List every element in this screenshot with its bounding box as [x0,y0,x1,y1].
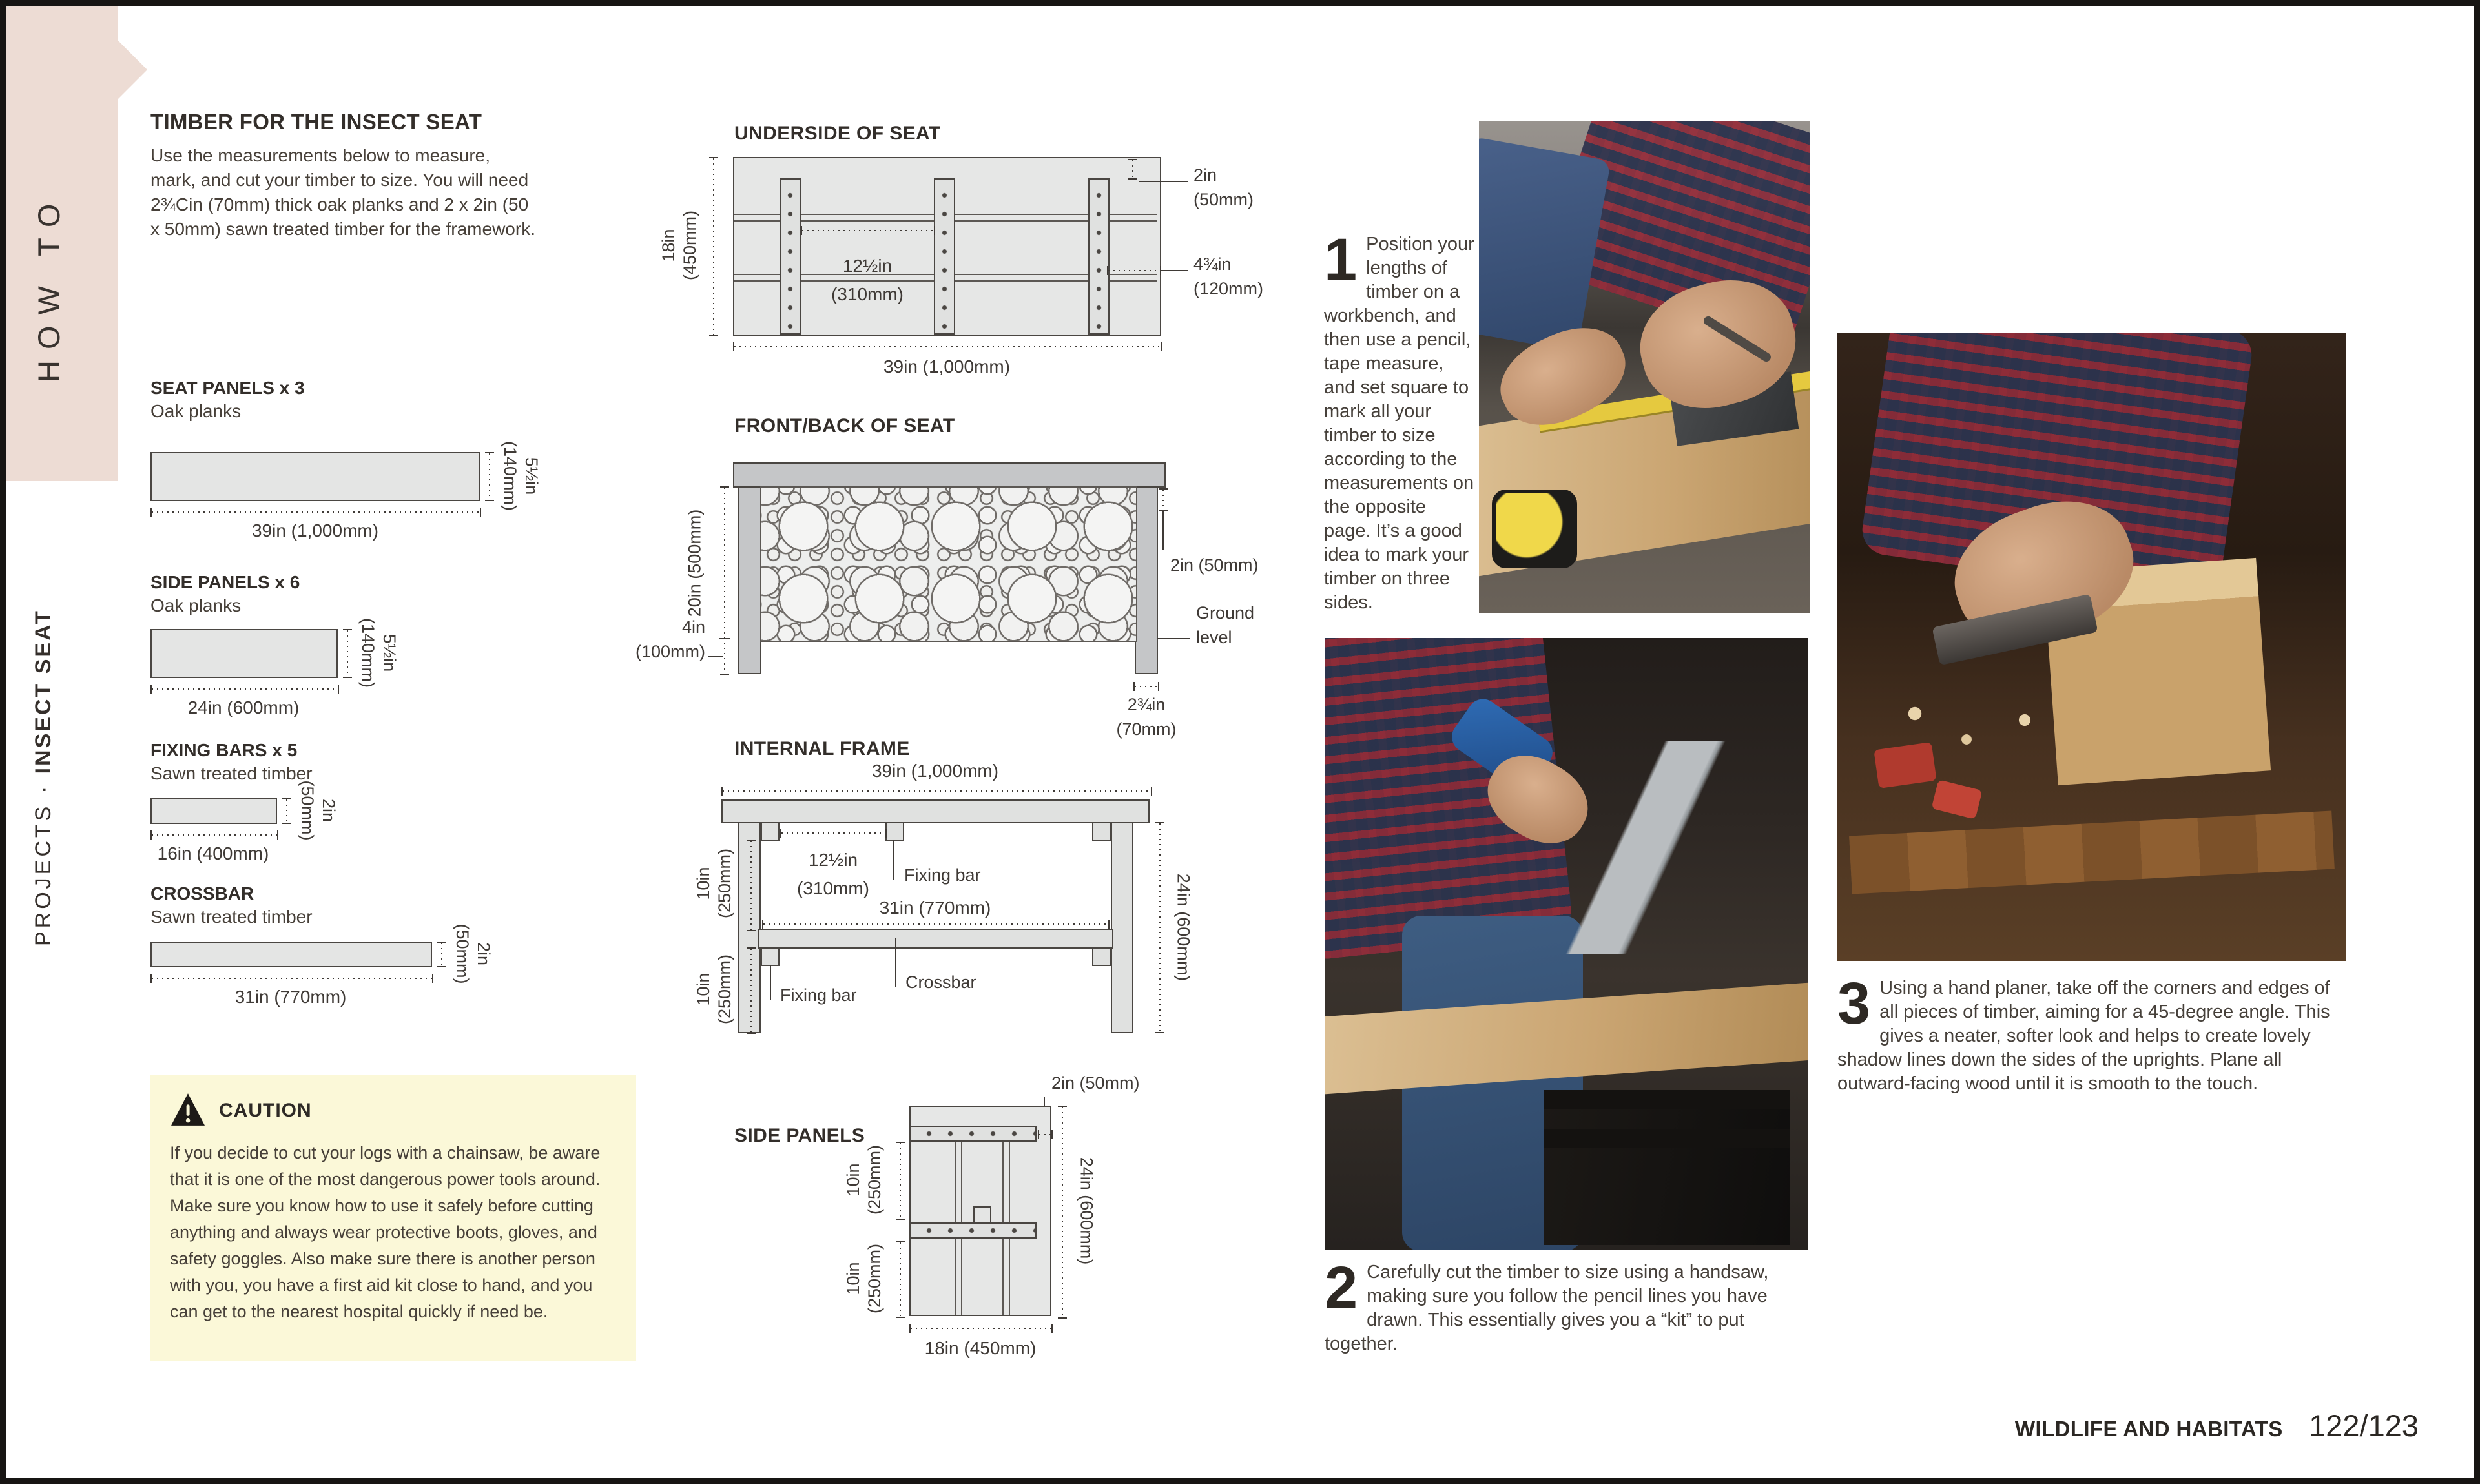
fixing-bar-length-label: 16in (400mm) [158,843,269,864]
step-1-number: 1 [1324,235,1357,284]
sidepanels-height-dim [1058,1106,1067,1319]
sidebar-project-title: INSECT SEAT [31,609,56,774]
step-2-number: 2 [1325,1263,1358,1312]
frontback-thickness-leader [1162,511,1164,550]
footer-section-label: WILDLIFE AND HABITATS [2015,1417,2283,1441]
underside-width-label: 39in (1,000mm) [883,356,1010,377]
internal-title: INTERNAL FRAME [734,738,910,760]
photo-planing-timber [1837,333,2346,961]
fixing-bar-diagram [150,798,277,824]
page-title: TIMBER FOR THE INSECT SEAT [150,110,482,134]
fixing-bar-lower-leader [770,965,771,1000]
sidepanels-height-label: 24in (600mm) [1076,1157,1097,1265]
frontback-height-dim [720,486,729,675]
internal-upper-label: 10in (250mm) [693,849,736,918]
step-3-text: Using a hand planer, take off the corner… [1837,978,2330,1094]
sidebar-category: PROJECTS [31,803,56,946]
sidepanels-width-dim [909,1324,1053,1333]
fixing-bar-upper-leader [893,840,894,880]
sidepanel-fixing-bar-top [909,1126,1037,1142]
internal-lower-dim [747,947,756,1034]
internal-width-dim [721,787,1152,796]
side-panel-width-dim [343,629,352,678]
internal-stub-upper-left [761,822,780,841]
underside-gap-leader [1139,181,1188,182]
underside-edge-dim [1107,266,1161,275]
frontback-seat-top [733,462,1166,488]
underside-edge-label: 4¾in (120mm) [1193,252,1263,301]
frontback-height-label: 20in (500mm) [685,510,706,617]
seat-panel-length-dim [150,508,481,517]
ground-level-label: Ground level [1196,601,1254,650]
sidepanels-diagram [909,1106,1051,1316]
crossbar-diagram [150,942,432,967]
step-2-text: Carefully cut the timber to size using a… [1325,1262,1768,1354]
frontback-left-leg [738,486,761,674]
sidepanel-gap-dim [1038,1130,1053,1139]
sidebar-ribbon-arrow [118,40,147,99]
seat-panel-length-label: 39in (1,000mm) [252,520,378,541]
sidepanels-gap-label: 2in (50mm) [1051,1071,1140,1095]
fixing-bar-length-dim [150,830,278,840]
book-spread: HOW TO PROJECTS · INSECT SEAT TIMBER FOR… [0,0,2480,1484]
internal-height-dim [1155,822,1164,1033]
crossbar-length-dim [150,974,433,983]
internal-stub-lower-left [761,947,780,966]
sidepanel-fixing-bar-mid [909,1222,1037,1239]
underside-fixing-bar-2 [934,178,955,335]
frontback-legwidth-dim [1133,682,1159,691]
internal-upper-dim [747,840,756,931]
caution-body: If you decide to cut your logs with a ch… [170,1140,617,1325]
crossbar-length-label: 31in (770mm) [235,987,347,1007]
frontback-log-panel [760,486,1137,642]
frontback-below-label: 4in (100mm) [633,615,705,664]
cutlist-side-panels-material: Oak planks [150,595,241,616]
step-2: 2 Carefully cut the timber to size using… [1325,1261,1784,1356]
page-footer: WILDLIFE AND HABITATS 122/123 [1873,1408,2419,1443]
frontback-thickness-dim [1159,488,1168,511]
cutlist-fixing-bars-name: FIXING BARS x 5 [150,740,297,761]
wood-shavings [1896,694,2063,772]
underside-fixing-bar-1 [780,178,801,335]
internal-stub-lower-right [1092,947,1111,966]
cutlist-side-panels-name: SIDE PANELS x 6 [150,572,300,593]
fixing-bar-width-label: 2in (50mm) [296,781,339,841]
underside-fixing-bar-3 [1088,178,1110,335]
underside-spacing-label: 12½in (310mm) [819,252,916,309]
fixing-bar-upper-label: Fixing bar [904,863,981,887]
frontback-right-leg [1135,486,1158,674]
underside-edge-leader [1161,270,1188,271]
sidepanel-notch [973,1206,991,1224]
frontback-below-leader [708,656,723,657]
step-1: 1 Position your lengths of timber on a w… [1324,232,1478,615]
internal-spacing-label: 12½in (310mm) [785,846,882,903]
underside-gap-dim [1128,159,1137,180]
cutlist-crossbar-name: CROSSBAR [150,883,254,904]
frontback-title: FRONT/BACK OF SEAT [734,415,955,437]
sidepanels-upper-dim [896,1142,905,1220]
sidepanels-lower-label: 10in (250mm) [843,1244,885,1314]
step-3-number: 3 [1837,979,1870,1028]
internal-inner-width-dim [762,920,1110,929]
ground-level-leader [1157,638,1190,639]
underside-diagram [733,157,1161,336]
warning-icon [171,1093,205,1126]
sawhorse [1544,1090,1790,1245]
seat-panel-diagram [150,452,480,501]
photo-sawing-timber [1325,638,1808,1250]
cutlist-seat-panels-material: Oak planks [150,401,241,422]
internal-top-rail [721,799,1150,823]
photo-marking-timber [1479,121,1810,613]
side-panel-length-label: 24in (600mm) [188,697,300,718]
cutlist-fixing-bars-material: Sawn treated timber [150,763,313,784]
underside-height-dim [709,157,718,336]
internal-stub-upper-mid [885,822,904,841]
sidebar-separator: · [31,783,56,794]
underside-gap-label: 2in (50mm) [1193,163,1254,212]
sidepanels-width-label: 18in (450mm) [925,1338,1037,1359]
cutlist-crossbar-material: Sawn treated timber [150,907,313,927]
side-panel-diagram [150,629,338,678]
cutlist-seat-panels-name: SEAT PANELS x 3 [150,378,305,398]
sidepanels-upper-label: 10in (250mm) [843,1145,885,1215]
seat-panel-width-label: 5½in (140mm) [499,441,542,511]
fixing-bar-width-dim [282,798,291,824]
internal-right-leg [1111,822,1133,1033]
tape-measure-body [1492,490,1577,568]
underside-title: UNDERSIDE OF SEAT [734,123,941,145]
internal-crossbar [758,929,1113,949]
caution-title: CAUTION [219,1100,312,1122]
crossbar-width-label: 2in (50mm) [451,924,494,984]
fixing-bar-lower-label: Fixing bar [780,983,857,1007]
seat-panel-width-dim [485,452,494,501]
sidebar-how-to-label: HOW TO [31,72,67,382]
side-panel-width-label: 5½in (140mm) [357,618,400,688]
internal-inner-width-label: 31in (770mm) [880,898,991,918]
frontback-thickness-label: 2in (50mm) [1170,553,1259,577]
underside-width-dim [733,342,1162,351]
footer-page-numbers: 122/123 [2309,1408,2419,1443]
step-3: 3 Using a hand planer, take off the corn… [1837,976,2349,1096]
internal-lower-label: 10in (250mm) [693,954,736,1024]
underside-spacing-dim [801,226,935,235]
crossbar-leader [895,938,896,987]
crossbar-width-dim [437,942,446,967]
side-panel-length-dim [150,685,339,694]
caution-box: CAUTION If you decide to cut your logs w… [150,1075,636,1361]
underside-height-label: 18in (450mm) [658,211,701,280]
internal-width-label: 39in (1,000mm) [872,761,998,781]
crossbar-label: Crossbar [905,970,976,994]
sidepanels-title: SIDE PANELS [734,1125,865,1147]
sidebar-section-label: PROJECTS · INSECT SEAT [31,494,56,946]
sidepanels-lower-dim [896,1241,905,1318]
internal-spacing-dim [780,829,887,838]
ground-tick [719,638,730,639]
internal-stub-upper-right [1092,822,1111,841]
internal-height-label: 24in (600mm) [1173,874,1194,982]
intro-paragraph: Use the measurements below to measure, m… [150,143,538,242]
frontback-legwidth-label: 2¾in (70mm) [1114,692,1179,741]
